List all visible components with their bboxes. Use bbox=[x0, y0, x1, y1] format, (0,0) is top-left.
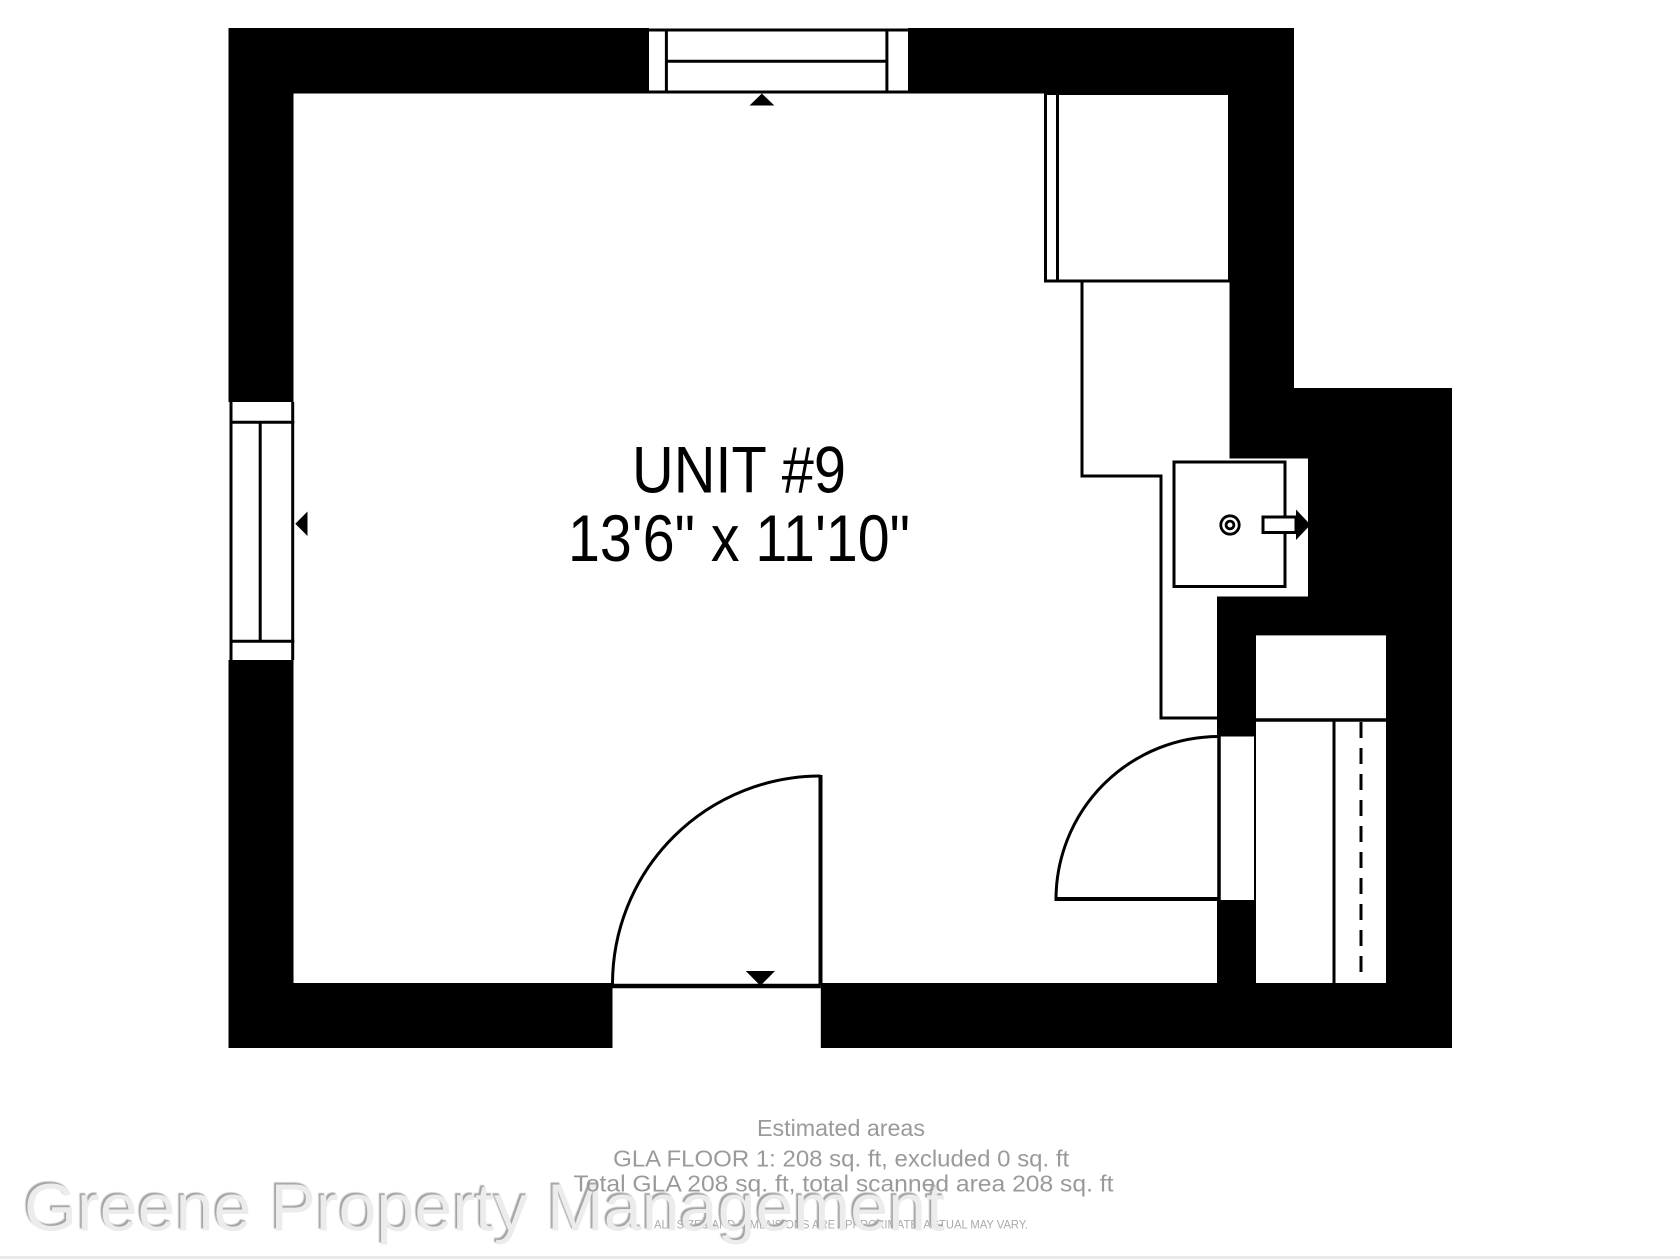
svg-text:UNIT #9: UNIT #9 bbox=[632, 434, 846, 508]
svg-text:GLA FLOOR 1: 208 sq. ft, exclu: GLA FLOOR 1: 208 sq. ft, excluded 0 sq. … bbox=[613, 1146, 1069, 1172]
svg-text:13'6" x 11'10": 13'6" x 11'10" bbox=[568, 502, 910, 576]
svg-text:Total GLA 208 sq. ft, total sc: Total GLA 208 sq. ft, total scanned area… bbox=[574, 1171, 1114, 1197]
svg-text:Estimated areas: Estimated areas bbox=[757, 1115, 925, 1141]
